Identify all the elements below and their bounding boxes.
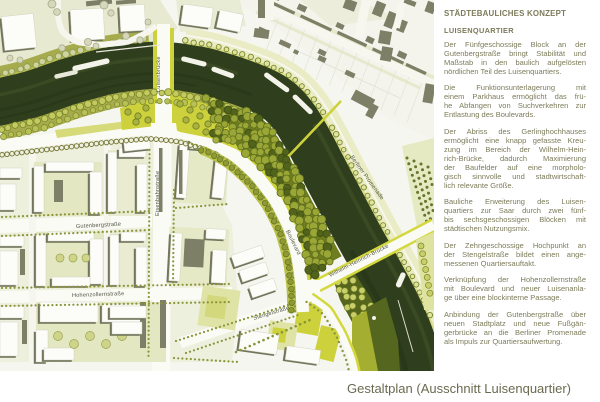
svg-text:Luisenbrücke: Luisenbrücke (156, 56, 162, 92)
svg-text:Eisenbahnstraße: Eisenbahnstraße (155, 171, 161, 216)
